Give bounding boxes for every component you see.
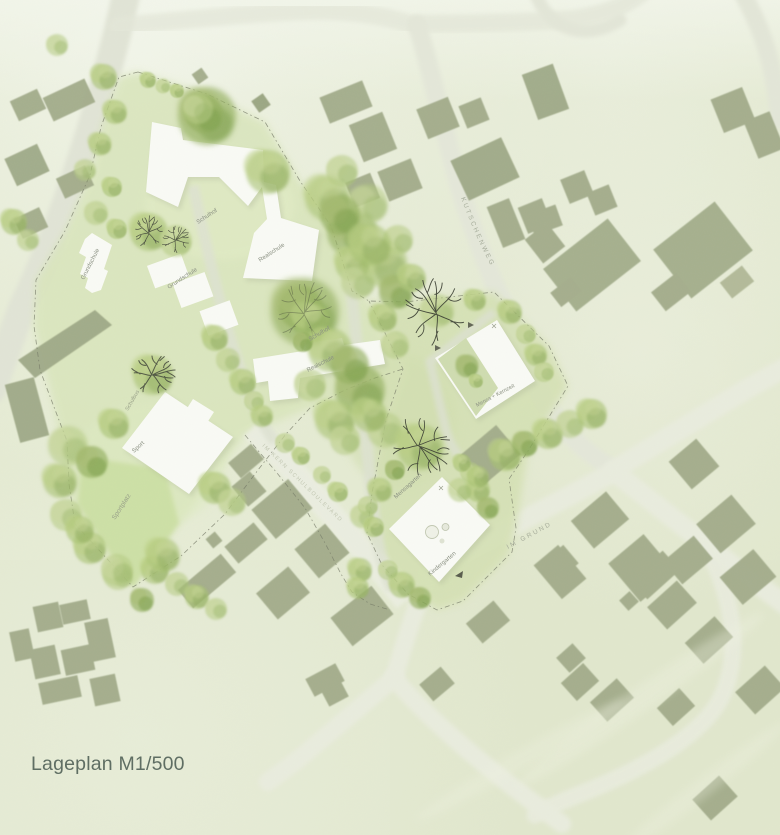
svg-text:Lageplan M1/500: Lageplan M1/500: [31, 753, 185, 775]
